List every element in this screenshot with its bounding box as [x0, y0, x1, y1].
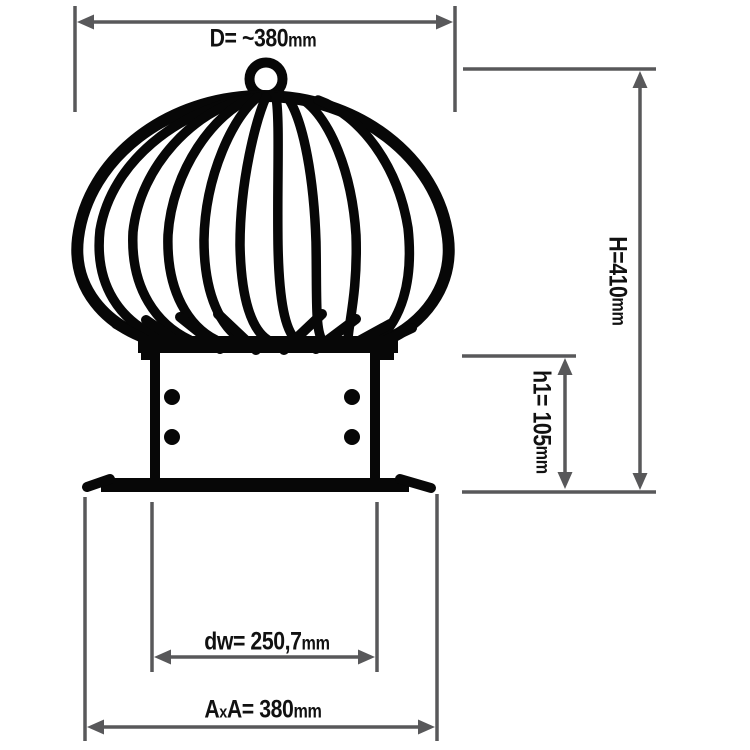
base-box-wall-left: [150, 353, 160, 479]
base-box-wall-right: [370, 353, 380, 479]
label-inner-diameter: dw= 250,7mm: [204, 630, 329, 655]
arrowhead-icon: [154, 650, 171, 665]
label-outer-square-x: x: [219, 703, 227, 722]
cowl-drawing: [0, 0, 750, 750]
label-total-height-value: H=410: [604, 236, 632, 297]
arrowhead-icon: [77, 15, 94, 30]
vane: [276, 97, 296, 340]
rivet-icon: [164, 429, 180, 445]
label-total-height-unit: mm: [608, 297, 629, 325]
vane: [240, 97, 268, 340]
label-base-height-unit: mm: [532, 446, 553, 474]
label-outer-square: AxA= 380mm: [204, 698, 321, 723]
vane: [302, 99, 356, 340]
rivet-icon: [344, 389, 360, 405]
vane: [288, 98, 322, 340]
label-top-width-value: D= ~380: [210, 25, 289, 53]
label-inner-diameter-unit: mm: [301, 634, 329, 655]
label-base-height-value: h1= 105: [528, 370, 556, 446]
label-outer-square-a1: A: [204, 696, 219, 724]
label-outer-square-unit: mm: [293, 702, 321, 723]
arrowhead-icon: [558, 472, 573, 489]
collar-tab-right: [379, 352, 394, 360]
label-base-height: h1= 105mm: [529, 370, 554, 474]
label-outer-square-a2: A= 380: [227, 696, 294, 724]
arrowhead-icon: [436, 15, 453, 30]
base-flange-icon: [101, 478, 409, 492]
label-top-width-unit: mm: [288, 31, 316, 52]
rivet-icon: [164, 389, 180, 405]
arrowhead-icon: [358, 650, 375, 665]
label-inner-diameter-value: dw= 250,7: [204, 628, 301, 656]
arrowhead-icon: [633, 71, 648, 88]
label-total-height: H=410mm: [605, 236, 630, 325]
arrowhead-icon: [633, 473, 648, 490]
rivet-icon: [344, 429, 360, 445]
arrowhead-icon: [558, 358, 573, 375]
label-top-width: D= ~380mm: [210, 27, 317, 52]
arrowhead-icon: [87, 720, 104, 735]
dimension-diagram-canvas: D= ~380mm H=410mm h1= 105mm dw= 250,7mm …: [0, 0, 750, 750]
turbine-head: [77, 63, 448, 351]
cowl-base: [87, 336, 431, 492]
arrowhead-icon: [418, 720, 435, 735]
base-collar-icon: [138, 336, 398, 353]
